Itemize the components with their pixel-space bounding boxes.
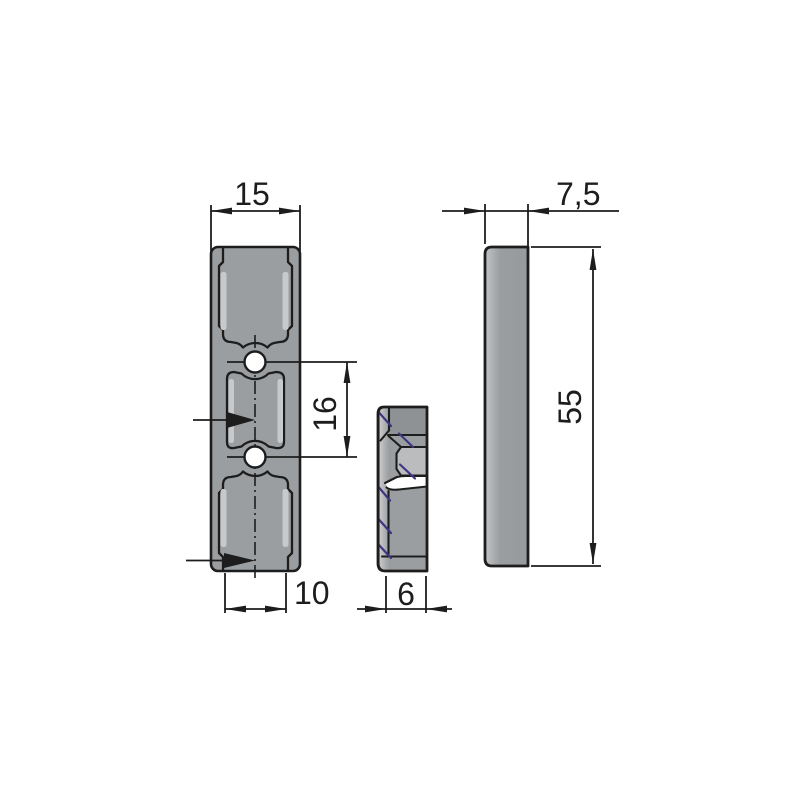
groove-highlight [283,489,289,547]
section-groove-floor [397,447,428,476]
side-view [485,247,528,566]
arrowhead [225,606,246,613]
arrowhead [464,208,485,215]
side-part-outline [485,247,528,566]
section-top-block [389,408,427,435]
groove-highlight [221,272,227,330]
dimension-label: 16 [307,396,343,432]
dimension-label: 55 [552,389,588,425]
arrowhead [265,606,286,613]
dimension-label: 15 [234,176,270,212]
arrowhead [590,543,597,564]
arrowhead [426,606,447,613]
drawing-canvas: 15 16 10 6 7,5 [0,0,800,800]
dimension-hole-spacing: 16 [307,362,350,457]
arrowhead [344,362,351,383]
arrowhead [211,208,232,215]
dimension-label: 6 [397,576,415,612]
groove-highlight [221,489,227,547]
dimension-section-thickness: 6 [357,576,452,613]
groove-highlight [229,379,235,443]
dimension-bottom-width: 10 [225,573,330,613]
arrowhead [365,606,386,613]
hole-bottom [245,447,266,468]
groove-highlight [283,272,289,330]
arrowhead [279,208,300,215]
arrowhead [344,436,351,457]
dimension-top-width: 15 [211,176,300,251]
section-bottom-block [389,491,427,556]
arrowhead [528,208,549,215]
arrowhead [590,249,597,270]
dimension-label: 7,5 [556,176,600,212]
dimension-height: 55 [531,247,601,566]
hole-top [245,352,266,373]
groove-highlight [278,379,284,443]
section-view [378,407,427,571]
technical-drawing: 15 16 10 6 7,5 [0,0,800,800]
dimension-side-thickness: 7,5 [442,176,619,258]
dimension-label: 10 [294,575,330,611]
